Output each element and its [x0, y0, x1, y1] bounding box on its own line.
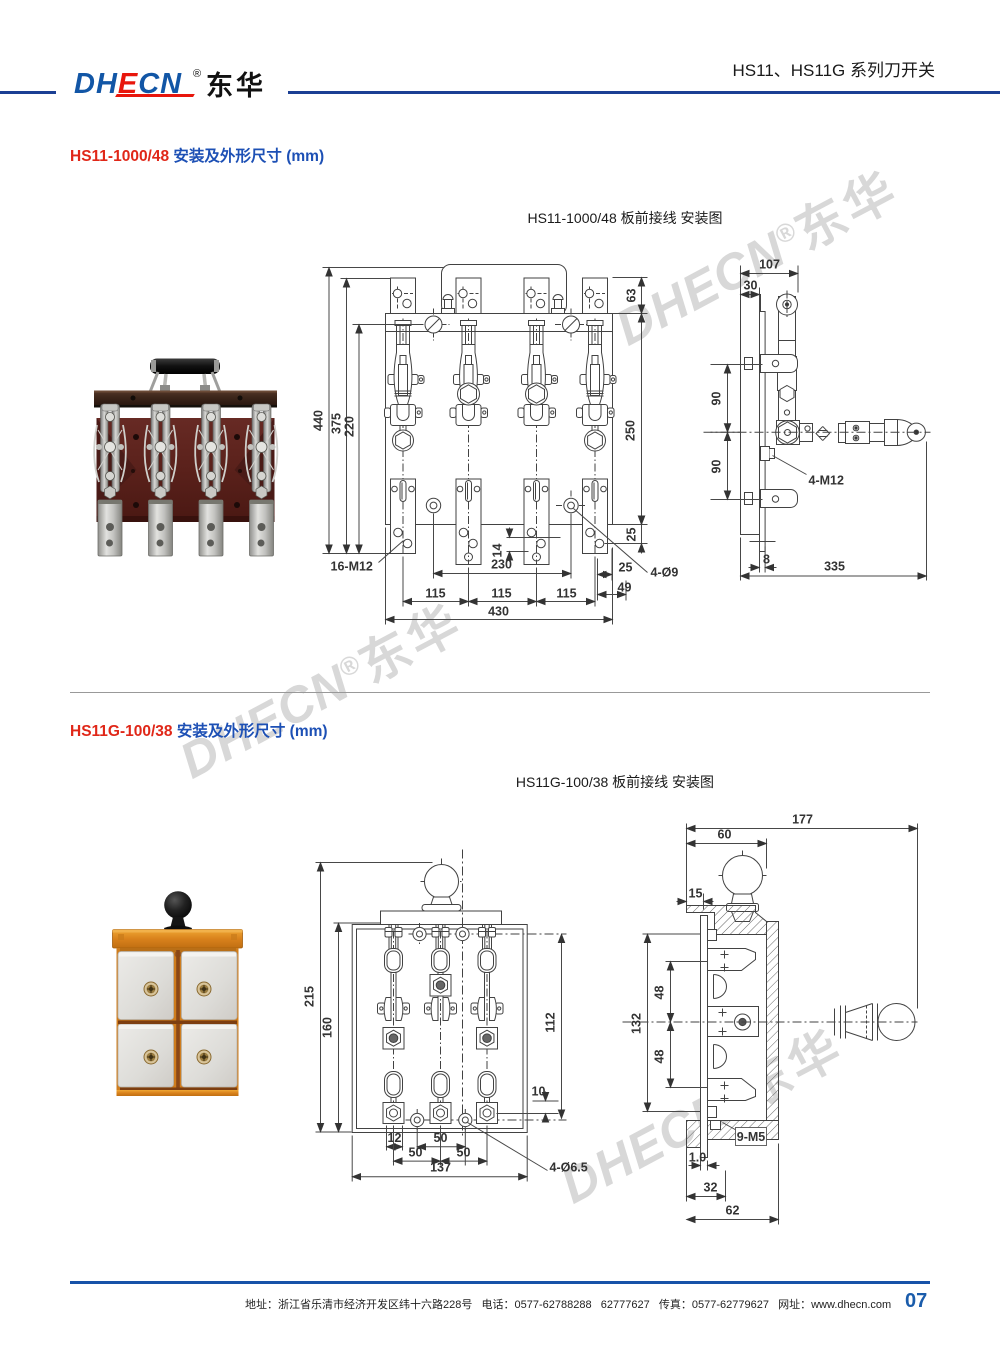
svg-text:215: 215: [303, 986, 317, 1007]
svg-text:60: 60: [718, 828, 732, 842]
svg-text:132: 132: [630, 1013, 644, 1034]
svg-text:112: 112: [544, 1012, 558, 1032]
svg-text:90: 90: [710, 392, 724, 406]
svg-text:160: 160: [321, 1017, 335, 1038]
svg-text:48: 48: [653, 1050, 667, 1064]
svg-text:25: 25: [625, 528, 639, 542]
svg-text:62: 62: [726, 1204, 740, 1218]
svg-text:10: 10: [532, 1085, 546, 1099]
svg-text:63: 63: [625, 289, 639, 303]
svg-text:335: 335: [824, 560, 845, 574]
svg-text:9-M5: 9-M5: [737, 1130, 766, 1144]
svg-text:8: 8: [763, 553, 770, 567]
svg-text:220: 220: [343, 416, 357, 437]
svg-text:177: 177: [792, 813, 813, 827]
svg-text:440: 440: [312, 410, 326, 431]
svg-text:4-M12: 4-M12: [809, 474, 844, 488]
svg-text:15: 15: [689, 887, 703, 901]
svg-text:375: 375: [330, 413, 344, 434]
svg-text:12: 12: [388, 1131, 402, 1145]
svg-text:90: 90: [710, 460, 724, 474]
svg-text:50: 50: [457, 1146, 471, 1160]
svg-text:230: 230: [491, 558, 512, 572]
svg-text:16-M12: 16-M12: [331, 560, 373, 574]
svg-text:430: 430: [488, 605, 509, 619]
svg-text:49: 49: [618, 581, 632, 595]
svg-text:115: 115: [491, 587, 511, 601]
svg-text:50: 50: [409, 1146, 423, 1160]
svg-text:14: 14: [491, 544, 505, 558]
svg-text:137: 137: [430, 1161, 451, 1175]
svg-text:48: 48: [653, 986, 667, 1000]
svg-text:115: 115: [556, 587, 576, 601]
svg-text:32: 32: [704, 1181, 718, 1195]
svg-text:1.0: 1.0: [689, 1151, 706, 1165]
svg-text:4-Ø9: 4-Ø9: [651, 566, 679, 580]
svg-text:4-Ø6.5: 4-Ø6.5: [550, 1161, 588, 1175]
svg-text:250: 250: [624, 420, 638, 441]
svg-text:30: 30: [744, 279, 758, 293]
svg-text:115: 115: [425, 587, 445, 601]
svg-text:25: 25: [619, 561, 633, 575]
svg-text:107: 107: [759, 258, 780, 272]
